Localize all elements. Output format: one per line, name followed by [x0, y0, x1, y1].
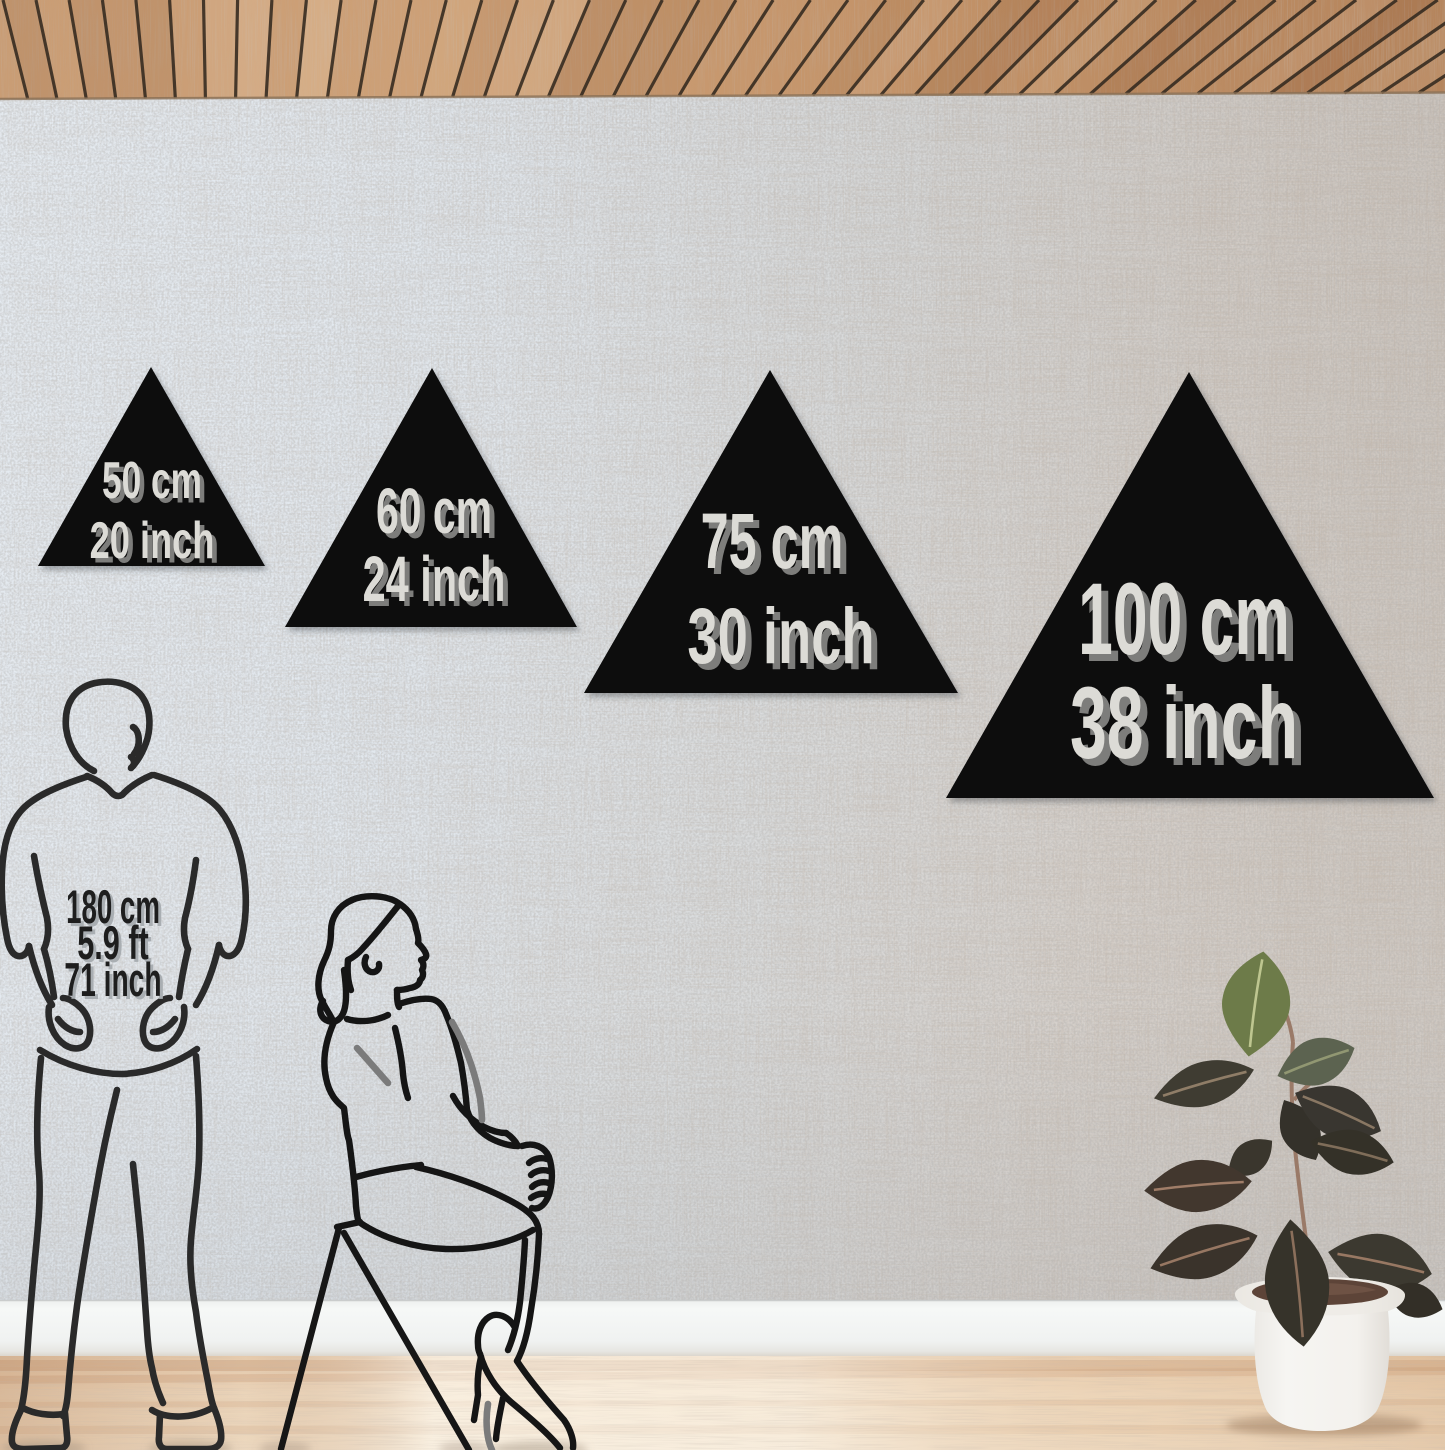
svg-text:71 inch: 71 inch: [64, 955, 161, 1007]
svg-text:50 cm: 50 cm: [102, 452, 202, 509]
svg-text:38 inch: 38 inch: [1070, 667, 1298, 781]
svg-text:75 cm: 75 cm: [701, 498, 844, 586]
svg-text:60 cm: 60 cm: [376, 476, 492, 547]
svg-text:20 inch: 20 inch: [90, 512, 215, 570]
svg-text:100 cm: 100 cm: [1078, 561, 1290, 676]
svg-text:30 inch: 30 inch: [687, 593, 874, 680]
svg-text:24 inch: 24 inch: [363, 544, 506, 615]
